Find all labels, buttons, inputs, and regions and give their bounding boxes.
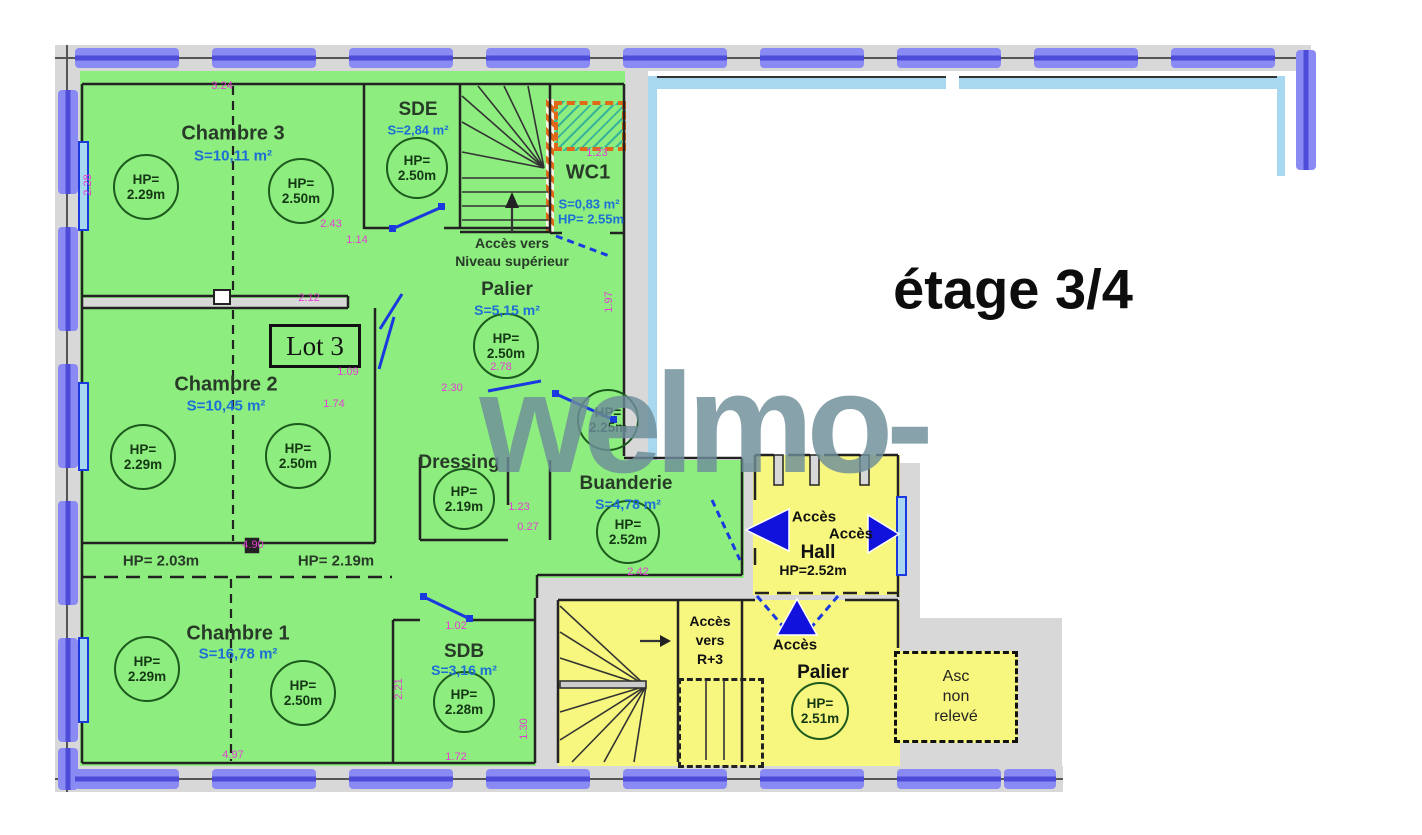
access-r3-line1: Accès — [689, 613, 730, 629]
dimension: 1.72 — [445, 751, 466, 763]
access-label-hall-left: Accès — [792, 509, 836, 526]
access-r3-line2: vers — [696, 632, 725, 648]
room-label-sde: SDE — [398, 99, 437, 121]
hp-text-right: HP= 2.19m — [298, 553, 374, 570]
hp-circle-sde: HP=2.50m — [386, 137, 448, 199]
stair-top — [462, 86, 548, 232]
dimension: 1.02 — [445, 620, 466, 632]
access-arrow-up — [777, 599, 817, 635]
dimension: 2.12 — [298, 292, 319, 304]
room-area-wc1: S=0,83 m² — [558, 197, 619, 212]
dimension: 2.28 — [82, 174, 94, 195]
room-hp-hall: HP=2.52m — [779, 562, 846, 578]
room-label-palier-haut: Palier — [481, 279, 533, 301]
dimension: 2.42 — [627, 566, 648, 578]
room-area-chambre2: S=10,45 m² — [187, 398, 266, 415]
dimension: 0.27 — [517, 521, 538, 533]
stair-bottom — [560, 606, 724, 762]
room-area-palier-haut: S=5,15 m² — [474, 302, 540, 318]
access-label-up: Accès — [773, 637, 817, 654]
access-upper-level-line2: Niveau supérieur — [455, 253, 569, 269]
dimension: 1.14 — [346, 234, 367, 246]
hp-circle-chambre1-left: HP=2.29m — [114, 636, 180, 702]
room-label-sdb: SDB — [444, 641, 484, 663]
dimension: 2.30 — [441, 382, 462, 394]
dimension: 2.43 — [320, 218, 341, 230]
dimension: 3.24 — [211, 80, 232, 92]
room-area-sde: S=2,84 m² — [387, 123, 448, 138]
room-hp-wc1: HP= 2.55m — [558, 212, 624, 227]
room-area-chambre3: S=10,11 m² — [194, 148, 272, 165]
dimension: 1.30 — [518, 718, 530, 739]
hp-circle-chambre1-right: HP=2.50m — [270, 660, 336, 726]
access-upper-level-line1: Accès vers — [475, 235, 549, 251]
room-label-wc1: WC1 — [566, 162, 610, 185]
access-arrow-left — [746, 509, 789, 551]
hp-text-left: HP= 2.03m — [123, 553, 199, 570]
hp-circle-sdb: HP=2.28m — [433, 671, 495, 733]
room-label-chambre1: Chambre 1 — [186, 623, 289, 646]
hp-circle-chambre2-left: HP=2.29m — [110, 424, 176, 490]
room-label-chambre3: Chambre 3 — [181, 123, 284, 146]
floor-plan: Asc non relevé — [0, 0, 1422, 835]
room-area-sdb: S=3,16 m² — [431, 662, 497, 678]
hp-circle-chambre2-right: HP=2.50m — [265, 423, 331, 489]
watermark: welmo- — [479, 342, 926, 506]
page-title: étage 3/4 — [893, 257, 1133, 322]
dimension: 4.90 — [242, 539, 263, 551]
dimension: 2.21 — [393, 678, 405, 699]
lot-number-box: Lot 3 — [269, 324, 361, 368]
room-area-chambre1: S=16,78 m² — [199, 646, 278, 663]
room-label-chambre2: Chambre 2 — [174, 374, 277, 397]
hp-circle-palier-bas: HP=2.51m — [791, 682, 849, 740]
access-label-hall-right: Accès — [829, 526, 873, 543]
dimension: 1.97 — [603, 291, 615, 312]
hp-circle-chambre3-left: HP=2.29m — [113, 154, 179, 220]
room-label-hall: Hall — [801, 542, 836, 564]
dimension: 1.23 — [586, 147, 607, 159]
hp-circle-chambre3-right: HP=2.50m — [268, 158, 334, 224]
dimension: 1.09 — [337, 366, 358, 378]
room-label-palier-bas: Palier — [797, 662, 849, 684]
dimension: 4.97 — [222, 749, 243, 761]
access-r3-line3: R+3 — [697, 651, 723, 667]
dimension: 1.74 — [323, 398, 344, 410]
